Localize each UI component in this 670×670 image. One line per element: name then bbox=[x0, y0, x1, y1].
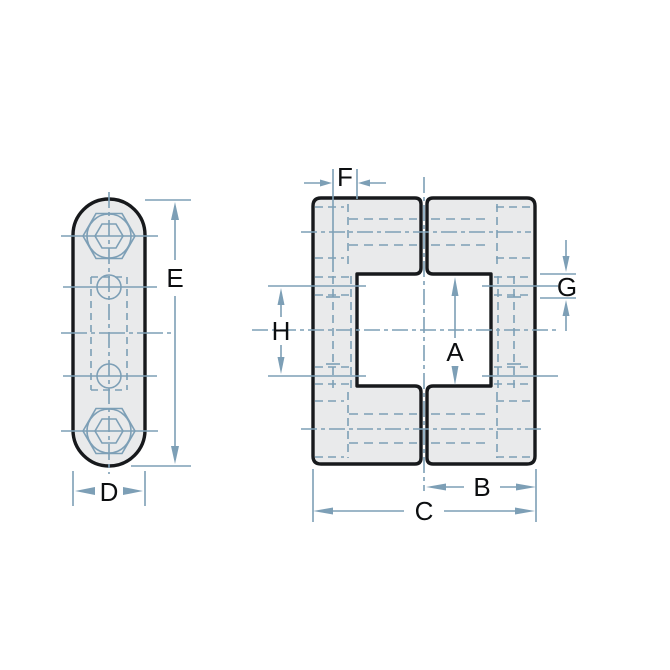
dimension-label-b: B bbox=[473, 472, 490, 502]
arrowhead-down bbox=[452, 366, 459, 385]
arrowhead-up bbox=[278, 288, 285, 305]
arrowhead-right bbox=[516, 484, 536, 491]
arrowhead-up bbox=[452, 277, 459, 296]
arrowhead-up bbox=[563, 300, 570, 316]
dimension-label-g: G bbox=[557, 272, 577, 302]
side-view bbox=[61, 192, 173, 474]
dimension-label-f: F bbox=[337, 162, 353, 192]
arrowhead-left bbox=[75, 487, 95, 495]
arrowhead-right bbox=[515, 508, 535, 515]
dimension-label-h: H bbox=[272, 316, 291, 346]
dimension-label-c: C bbox=[415, 496, 434, 526]
arrowhead-right bbox=[320, 180, 332, 187]
arrowhead-up bbox=[171, 202, 179, 220]
dimension-D: D bbox=[73, 471, 145, 507]
arrowhead-right bbox=[123, 487, 143, 495]
technical-drawing-canvas: E D F A bbox=[0, 0, 670, 670]
arrowhead-left bbox=[358, 180, 370, 187]
dimension-label-d: D bbox=[100, 477, 119, 507]
arrowhead-down bbox=[563, 256, 570, 272]
dimension-B: B bbox=[426, 469, 536, 522]
arrowhead-left bbox=[426, 484, 446, 491]
dimension-label-a: A bbox=[446, 337, 464, 367]
dimension-H: H bbox=[272, 288, 291, 374]
front-view-left-half bbox=[313, 198, 421, 464]
arrowhead-down bbox=[171, 446, 179, 464]
arrowhead-left bbox=[313, 508, 333, 515]
dimension-A: A bbox=[446, 277, 464, 385]
dimension-label-e: E bbox=[166, 263, 183, 293]
arrowhead-down bbox=[278, 357, 285, 374]
front-view-right-half bbox=[427, 198, 535, 464]
front-view bbox=[252, 177, 558, 491]
drawing-svg: E D F A bbox=[0, 0, 670, 670]
